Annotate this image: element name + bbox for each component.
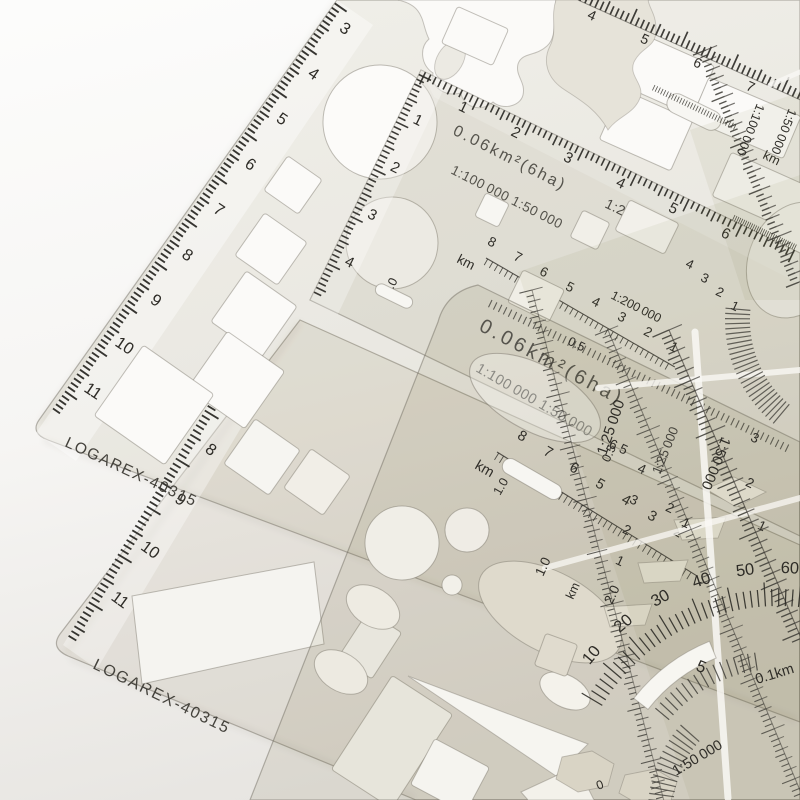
svg-text:50: 50	[735, 560, 756, 580]
svg-text:60: 60	[780, 559, 799, 578]
